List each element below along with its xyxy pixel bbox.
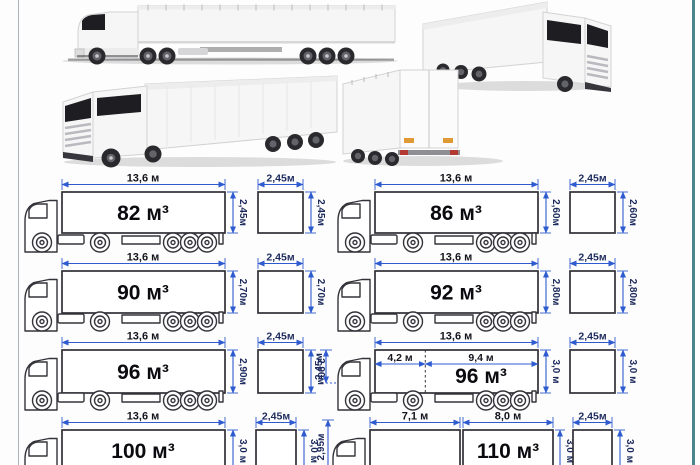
- cab-height-label: 2,45м: [314, 353, 325, 380]
- diagram-row4-left: 13,6 м 100 м³ 3,0 м: [25, 411, 248, 465]
- volume-label: 110 м³: [477, 440, 539, 463]
- front-length-label: 4,2 м: [387, 352, 413, 364]
- diagram-row2-left-cross-section: 2,45м 2,70м: [258, 252, 326, 314]
- section-height-label: 2,70м: [315, 279, 326, 306]
- truck-box: [370, 430, 460, 465]
- length-dimension: 13,6 м: [62, 252, 225, 270]
- section-height-label: 3,0 м: [627, 359, 638, 383]
- cab-height-label: 2,95м: [316, 434, 327, 461]
- cross-section-box: [258, 350, 303, 393]
- diagram-row4-left-cross-section: 2,45м 3,0 м: [256, 411, 319, 465]
- section-height-label: 2,45м: [315, 199, 326, 226]
- section-width-label: 2,45м: [262, 411, 290, 423]
- diagram-row3-left: 13,6 м 96 м³ 2,90м: [25, 331, 248, 411]
- photo-truck-front-left-view: [55, 72, 345, 168]
- height-dimension: 2,45м: [227, 192, 248, 233]
- diagram-row4-right-cross-section: 2,45м 3,0 м: [573, 411, 635, 465]
- diagram-row2-right: 13,6 м 92 м³ 2,80м: [338, 252, 561, 332]
- page-right-border: [692, 0, 695, 465]
- height-dimension: 2,80м: [540, 271, 561, 313]
- section-width-label: 2,45м: [578, 252, 606, 264]
- height-dimension: 2,90м: [227, 350, 248, 393]
- rear-length-dimension: 8,0 м: [463, 411, 553, 429]
- cross-section-box: [256, 430, 296, 465]
- height-label: 2,80м: [550, 279, 561, 306]
- volume-label: 82 м³: [117, 202, 169, 225]
- volume-label: 96 м³: [455, 365, 507, 388]
- cross-section-box: [258, 271, 303, 313]
- length-label: 13,6 м: [440, 252, 473, 264]
- photo-truck-side-view: [50, 3, 400, 67]
- truck-cab-drawing: [25, 439, 57, 465]
- section-width-label: 2,45м: [578, 411, 606, 423]
- length-dimension: 13,6 м: [62, 331, 225, 349]
- height-dimension: 3,0 м: [555, 430, 575, 465]
- volume-label: 100 м³: [111, 440, 174, 463]
- height-dimension: 3,0 м: [227, 430, 248, 465]
- height-dimension: 3,0 м: [540, 350, 561, 393]
- height-dimension: 2,60м: [540, 192, 561, 233]
- diagram-row1-left-cross-section: 2,45м 2,45м: [258, 173, 326, 234]
- height-dimension: 2,70м: [227, 271, 248, 313]
- section-width-label: 2,45м: [266, 252, 294, 264]
- length-dimension: 13,6 м: [62, 173, 225, 191]
- length-label: 13,6 м: [127, 331, 160, 343]
- section-height-label: 3,0 м: [624, 439, 635, 463]
- height-label: 2,60м: [550, 199, 561, 226]
- length-label: 13,6 м: [127, 411, 160, 423]
- section-width-label: 2,45м: [266, 173, 294, 185]
- length-label: 13,6 м: [127, 252, 160, 264]
- diagram-row1-right-cross-section: 2,45м 2,60м: [570, 173, 638, 234]
- length-dimension: 13,6 м: [62, 411, 225, 429]
- diagram-row2-right-cross-section: 2,45м 2,80м: [570, 252, 638, 314]
- length-label: 13,6 м: [440, 173, 473, 185]
- section-width-label: 2,45м: [578, 331, 606, 343]
- cross-section-box: [570, 350, 615, 393]
- diagram-row3-right: 13,6 м 4,2 м 9,4 м 96 м³ 3,0 м 2,45м: [314, 331, 561, 411]
- cross-section-box: [570, 271, 615, 313]
- diagram-row3-right-cross-section: 2,45м 3,0 м: [570, 331, 638, 394]
- truck-volume-diagram-page: 13,6 м 82 м³ 2,45м 2,45м 2,45м: [0, 0, 700, 465]
- length-dimension: 13,6 м: [375, 173, 538, 191]
- cross-section-box: [570, 192, 615, 233]
- volume-label: 90 м³: [117, 282, 169, 305]
- volume-label: 86 м³: [430, 202, 482, 225]
- dimension-diagrams: 13,6 м 82 м³ 2,45м 2,45м 2,45м: [0, 170, 700, 465]
- volume-label: 92 м³: [430, 282, 482, 305]
- height-label: 3,0 м: [237, 439, 248, 463]
- rear-length-label: 9,4 м: [468, 352, 494, 364]
- diagram-row2-left: 13,6 м 90 м³ 2,70м: [25, 252, 248, 332]
- diagram-row1-left: 13,6 м 82 м³ 2,45м: [25, 173, 248, 253]
- height-label: 2,70м: [237, 279, 248, 306]
- front-length-dimension: 7,1 м: [370, 411, 460, 429]
- section-width-label: 2,45м: [578, 173, 606, 185]
- cross-section-box: [573, 430, 612, 465]
- photo-truck-rear-view: [338, 62, 508, 168]
- cross-section-box: [258, 192, 303, 233]
- section-width-label: 2,45м: [266, 331, 294, 343]
- length-dimension: 13,6 м: [375, 252, 538, 270]
- length-label: 13,6 м: [127, 173, 160, 185]
- truck-cab-drawing: [333, 439, 365, 465]
- section-height-label: 2,80м: [627, 279, 638, 306]
- section-height-label: 2,60м: [627, 199, 638, 226]
- cab-height-dimension: 2,95м: [316, 420, 334, 465]
- diagram-row4-right: 7,1 м 8,0 м 110 м³ 3,0 м 2,95м: [316, 411, 575, 465]
- length-label: 13,6 м: [440, 331, 473, 343]
- height-label: 3,0 м: [550, 359, 561, 383]
- front-length-label: 7,1 м: [402, 411, 429, 423]
- height-label: 2,45м: [237, 199, 248, 226]
- volume-label: 96 м³: [117, 361, 169, 384]
- rear-length-label: 8,0 м: [495, 411, 522, 423]
- height-label: 2,90м: [237, 358, 248, 385]
- diagram-row1-right: 13,6 м 86 м³ 2,60м: [338, 173, 561, 253]
- length-dimension: 13,6 м: [375, 331, 538, 349]
